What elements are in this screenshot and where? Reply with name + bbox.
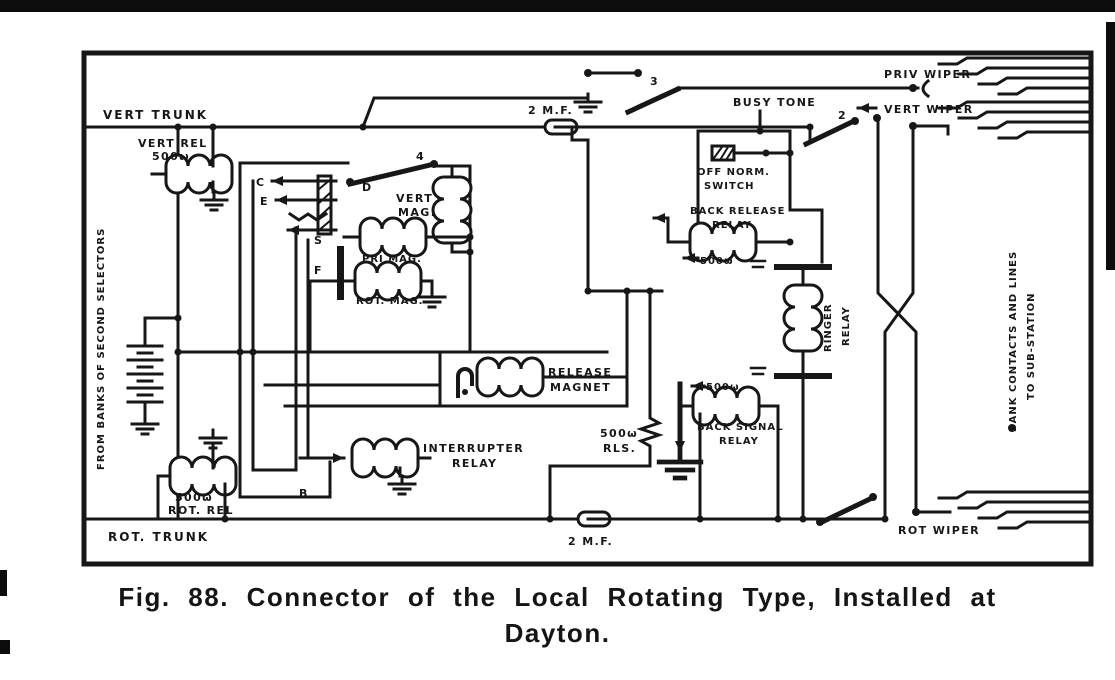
label-rot-trunk: ROT. TRUNK xyxy=(108,530,209,544)
label-rot-rel-1: 500ω xyxy=(175,491,213,504)
ground-icon xyxy=(132,416,158,434)
back-signal-relay xyxy=(659,381,778,519)
scanned-page: VERT TRUNK VERT REL 500ω FROM BANKS OF S… xyxy=(0,0,1115,680)
label-off-norm-2: SWITCH xyxy=(704,181,754,192)
label-switch-2: 2 xyxy=(838,109,847,122)
interrupter-relay xyxy=(352,439,430,494)
label-back-signal-1: BACK SIGNAL xyxy=(697,422,784,433)
label-rot-mag: ROT. MAG. xyxy=(356,296,423,307)
schematic-figure: VERT TRUNK VERT REL 500ω FROM BANKS OF S… xyxy=(0,0,1115,680)
rot-mag-coil-icon xyxy=(355,262,421,300)
ground-icon xyxy=(201,192,227,210)
label-pri-mag: PRI MAG. xyxy=(362,254,422,265)
label-release-1: RELEASE xyxy=(548,366,612,379)
label-release-2: MAGNET xyxy=(550,381,611,394)
rot-bank-contacts xyxy=(939,492,1089,528)
label-back-signal-ohm: 500ω xyxy=(706,382,740,393)
label-off-norm-1: OFF NORM. xyxy=(697,167,770,178)
label-rot-rel-2: ROT. REL xyxy=(168,504,234,517)
label-vert-rel: VERT REL xyxy=(138,137,208,150)
label-ringer-1: RINGER xyxy=(823,303,834,352)
cam-contacts-and-magnets xyxy=(240,163,471,352)
label-switch-3: 3 xyxy=(650,75,659,88)
label-bank-contacts-1: BANK CONTACTS AND LINES xyxy=(1008,251,1019,432)
label-vert-mag-1: VERT xyxy=(396,192,433,205)
relay-coil-icon xyxy=(352,439,418,477)
capacitor-2mf-bottom xyxy=(578,512,610,526)
label-interrupter-2: RELAY xyxy=(452,457,497,470)
label-ringer-2: RELAY xyxy=(841,306,852,346)
battery-icon xyxy=(128,346,162,402)
label-contact-f: F xyxy=(314,264,323,277)
label-vert-trunk: VERT TRUNK xyxy=(103,108,208,122)
label-vert-mag-2: MAG. xyxy=(398,206,436,219)
label-back-release-1: BACK RELEASE xyxy=(690,206,785,217)
label-interrupter-1: INTERRUPTER xyxy=(423,442,524,455)
pri-mag-coil-icon xyxy=(360,218,426,256)
label-vert-rel-ohm: 500ω xyxy=(152,150,190,163)
vert-mag-coil-icon xyxy=(433,177,471,243)
label-back-release-ohm: 500ω xyxy=(700,256,734,267)
label-priv-wiper: PRIV WIPER xyxy=(884,68,971,81)
switch-blade-3 xyxy=(628,89,678,112)
relay-coil-icon xyxy=(784,285,822,351)
label-contact-d: D xyxy=(362,181,373,194)
wiper-wiring xyxy=(858,103,950,519)
label-back-signal-2: RELAY xyxy=(719,436,759,447)
label-vert-wiper: VERT WIPER xyxy=(884,103,974,116)
label-contact-b: B xyxy=(299,487,309,500)
label-contact-s: S xyxy=(314,234,323,247)
figure-caption-line1: Fig. 88. Connector of the Local Rotating… xyxy=(0,582,1115,613)
contact-f-bar xyxy=(337,246,344,300)
label-rls-ohm-2: RLS. xyxy=(603,442,636,455)
label-cap-top: 2 M.F. xyxy=(528,104,573,117)
label-contact-c: C xyxy=(256,176,265,189)
label-busy-tone: BUSY TONE xyxy=(733,96,816,109)
label-cap-bottom: 2 M.F. xyxy=(568,535,613,548)
label-rot-wiper: ROT WIPER xyxy=(898,524,980,537)
label-switch-4: 4 xyxy=(416,150,425,163)
ringer-relay xyxy=(751,285,829,519)
ground-icon xyxy=(389,476,415,494)
ground-icon xyxy=(659,449,701,478)
release-magnet-coil-icon xyxy=(477,358,543,396)
label-from-banks: FROM BANKS OF SECOND SELECTORS xyxy=(96,228,107,470)
figure-caption-line2: Dayton. xyxy=(0,618,1115,649)
label-contact-e: E xyxy=(260,195,269,208)
label-rls-ohm-1: 500ω xyxy=(600,427,638,440)
label-bank-contacts-2: TO SUB-STATION xyxy=(1026,292,1037,400)
label-back-release-2: RELAY xyxy=(712,220,752,231)
